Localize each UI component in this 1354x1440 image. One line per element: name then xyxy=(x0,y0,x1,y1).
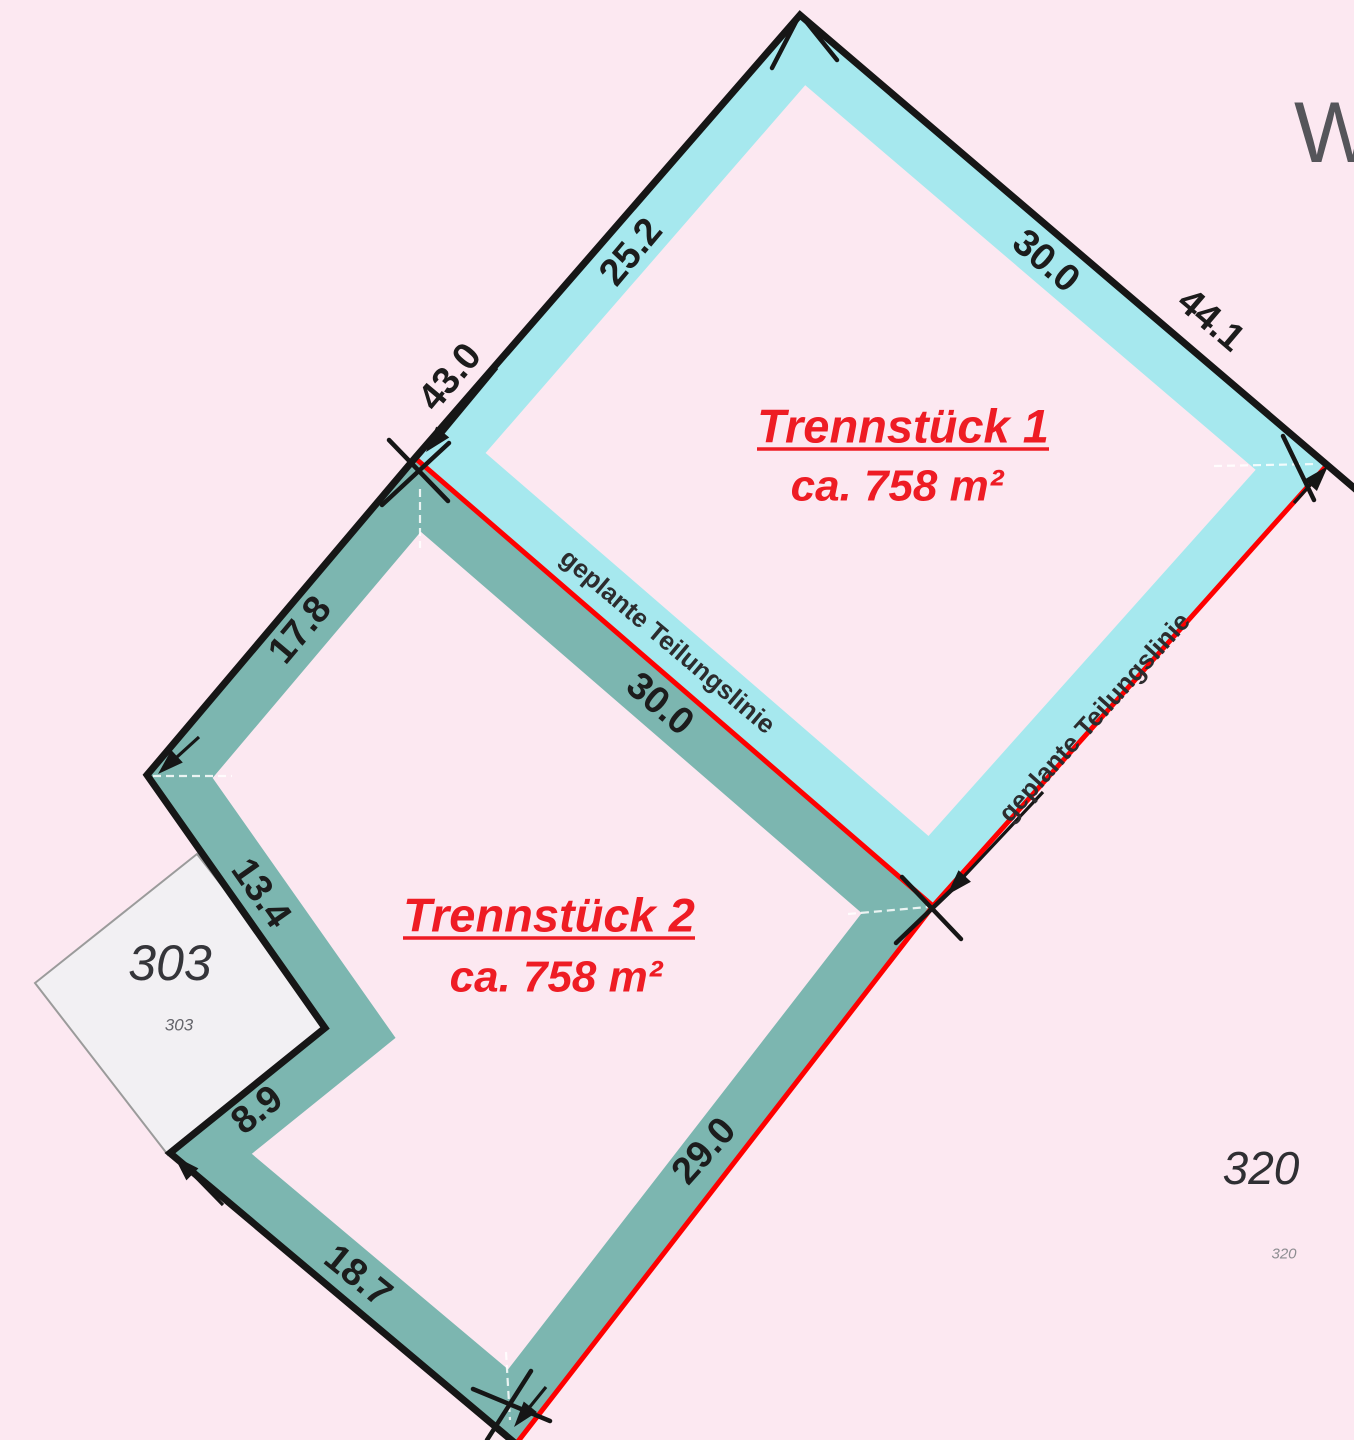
parcel-320-number: 320 xyxy=(1223,1142,1300,1194)
parcel-2-title: Trennstück 2 xyxy=(403,889,695,942)
cadastral-map: 43.0 25.2 30.0 44.1 17.8 13.4 8.9 18.7 2… xyxy=(0,0,1354,1440)
parcel-303-number: 303 xyxy=(128,935,212,991)
edge-street-label-partial: W- xyxy=(1294,85,1354,181)
parcel-1-title: Trennstück 1 xyxy=(757,400,1049,453)
parcel-320-small-number: 320 xyxy=(1271,1246,1297,1263)
parcel-2-area: ca. 758 m² xyxy=(450,953,664,1002)
parcel-303-small-number: 303 xyxy=(165,1016,194,1035)
parcel-1-area: ca. 758 m² xyxy=(791,462,1005,511)
